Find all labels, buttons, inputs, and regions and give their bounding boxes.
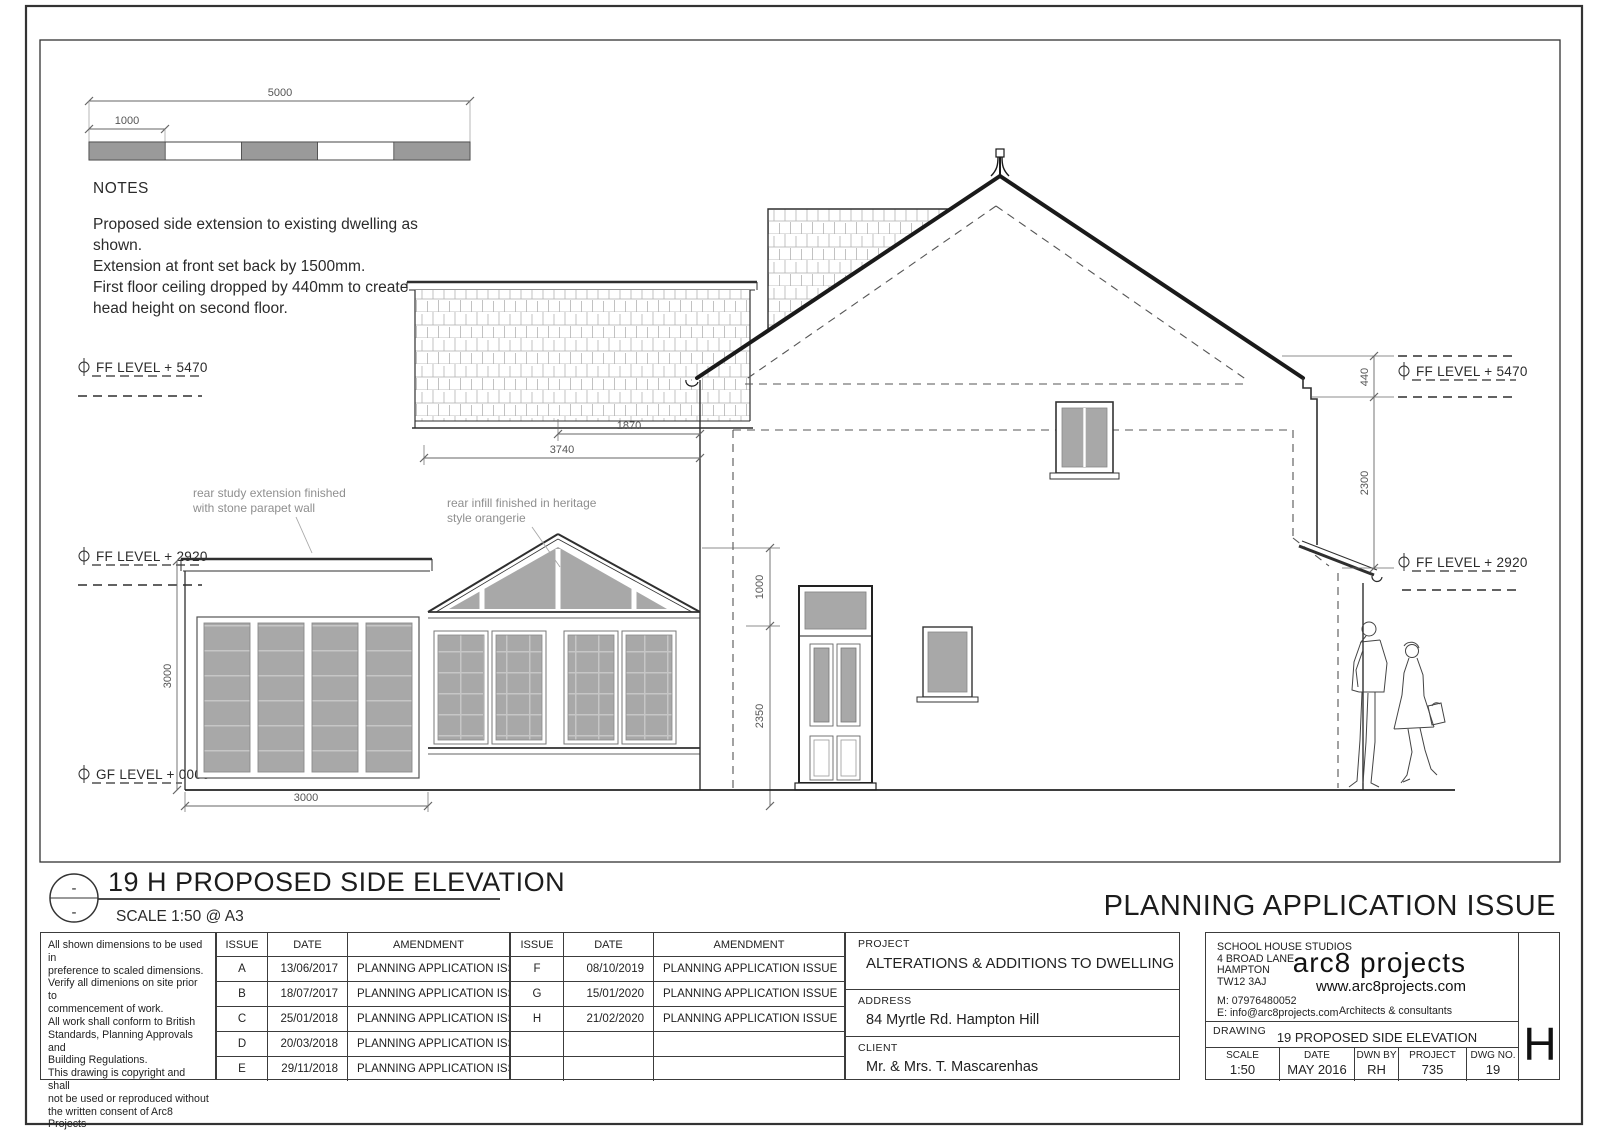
table-row: B 18/07/2017 PLANNING APPLICATION ISSUE: [217, 981, 509, 1006]
cell-amendment: PLANNING APPLICATION ISSUE: [347, 1057, 509, 1081]
drawn-by-value: RH: [1355, 1061, 1398, 1077]
dim-440: 440: [1359, 368, 1371, 386]
finial-icon: [991, 149, 1009, 176]
table-row: C 25/01/2018 PLANNING APPLICATION ISSUE: [217, 1006, 509, 1031]
cell-issue: [511, 1032, 563, 1056]
firm-logo-text: arc8 projects: [1293, 947, 1466, 979]
notes-line: head height on second floor.: [93, 300, 288, 317]
cell-date: [563, 1057, 653, 1081]
ff-level-2920-left: FF LEVEL + 2920: [96, 549, 208, 564]
dim-1870: 1870: [617, 420, 641, 432]
project-info-block: PROJECT ALTERATIONS & ADDITIONS TO DWELL…: [845, 932, 1180, 1080]
cell-date: 15/01/2020: [563, 982, 653, 1006]
scale-cell: SCALE 1:50: [1206, 1048, 1279, 1081]
notes-heading: NOTES: [93, 180, 149, 197]
parapet-annotation: with stone parapet wall: [192, 501, 315, 515]
notes-line: Proposed side extension to existing dwel…: [93, 216, 418, 233]
ff-level-2920-right: FF LEVEL + 2920: [1416, 555, 1528, 570]
dwg-no-value: 19: [1467, 1061, 1519, 1077]
cell-amendment: [653, 1032, 844, 1056]
general-notes-box: All shown dimensions to be used in prefe…: [40, 932, 216, 1080]
project-no-label: PROJECT: [1399, 1050, 1466, 1061]
notes-line: Extension at front set back by 1500mm.: [93, 258, 365, 275]
cell-issue: A: [217, 957, 267, 981]
table-row: [511, 1056, 844, 1081]
datum-icon: [79, 358, 89, 783]
dim-3740: 3740: [550, 444, 574, 456]
project-no-value: 735: [1399, 1061, 1466, 1077]
scale-bar: 5000 1000: [85, 87, 474, 160]
view-ref-top: -: [72, 880, 77, 897]
firm-tagline: Architects & consultants: [1339, 1005, 1452, 1017]
door-glazed-panel: [814, 648, 829, 722]
table-row: A 13/06/2017 PLANNING APPLICATION ISSUE: [217, 956, 509, 981]
drawing-sheet: 5000 1000 NOTES Proposed side extension …: [0, 0, 1600, 1130]
ground-floor-window: [917, 627, 978, 702]
drawing-title-row: DRAWING 19 PROPOSED SIDE ELEVATION: [1206, 1021, 1519, 1047]
revision-header-row: ISSUE DATE AMENDMENT: [217, 933, 509, 956]
cell-amendment: PLANNING APPLICATION ISSUE: [347, 1007, 509, 1031]
dim-3000-height: 3000: [162, 664, 174, 688]
gf-level-left: GF LEVEL + 0000: [96, 767, 210, 782]
cell-date: 13/06/2017: [267, 957, 347, 981]
project-row: PROJECT ALTERATIONS & ADDITIONS TO DWELL…: [846, 933, 1179, 989]
firm-info-area: SCHOOL HOUSE STUDIOS 4 BROAD LANE HAMPTO…: [1206, 933, 1519, 1021]
cell-amendment: PLANNING APPLICATION ISSUE: [653, 957, 844, 981]
drawing-info-row: SCALE 1:50 DATE MAY 2016 DWN BY RH PROJE…: [1206, 1047, 1519, 1081]
project-client: Mr. & Mrs. T. Mascarenhas: [858, 1054, 1179, 1075]
cell-issue: B: [217, 982, 267, 1006]
cell-amendment: PLANNING APPLICATION ISSUE: [347, 982, 509, 1006]
view-title: - - 19 H PROPOSED SIDE ELEVATION SCALE 1…: [50, 867, 1556, 925]
scale-value: 1:50: [1206, 1061, 1279, 1077]
firm-mobile: M: 07976480052: [1217, 995, 1297, 1007]
dim-1000: 1000: [754, 575, 766, 599]
table-row: D 20/03/2018 PLANNING APPLICATION ISSUE: [217, 1031, 509, 1056]
project-no-cell: PROJECT 735: [1398, 1048, 1466, 1081]
glazed-door-panel: [204, 623, 250, 772]
table-row: [511, 1031, 844, 1056]
cell-issue: C: [217, 1007, 267, 1031]
level-markers-right: FF LEVEL + 5470 FF LEVEL + 2920: [1398, 356, 1528, 590]
project-label: PROJECT: [858, 938, 1179, 950]
firm-title-block: SCHOOL HOUSE STUDIOS 4 BROAD LANE HAMPTO…: [1205, 932, 1560, 1080]
dim-3000-width: 3000: [294, 792, 318, 804]
drawn-by-label: DWN BY: [1355, 1050, 1398, 1061]
notes-block: NOTES Proposed side extension to existin…: [93, 180, 418, 317]
scalebar-first-label: 1000: [115, 115, 139, 127]
gutter-end-icon: [1372, 576, 1382, 582]
dim-2300: 2300: [1359, 471, 1371, 495]
revision-table-left: ISSUE DATE AMENDMENT A 13/06/2017 PLANNI…: [216, 932, 510, 1080]
revision-letter-box: H: [1519, 933, 1561, 1081]
window-sill: [1050, 473, 1119, 479]
cell-date: 20/03/2018: [267, 1032, 347, 1056]
project-address: 84 Myrtle Rd. Hampton Hill: [858, 1007, 1179, 1028]
cell-issue: E: [217, 1057, 267, 1081]
parapet-annotation: rear study extension finished: [193, 486, 346, 500]
cell-amendment: PLANNING APPLICATION ISSUE: [653, 982, 844, 1006]
table-row: E 29/11/2018 PLANNING APPLICATION ISSUE: [217, 1056, 509, 1081]
address-label: ADDRESS: [858, 995, 1179, 1007]
scale-label: SCALE: [1206, 1050, 1279, 1061]
ff-level-5470-left: FF LEVEL + 5470: [96, 360, 208, 375]
door-glazed-panel: [841, 648, 856, 722]
glazed-door-panel: [312, 623, 358, 772]
cell-date: 25/01/2018: [267, 1007, 347, 1031]
cell-date: [563, 1032, 653, 1056]
date-value: MAY 2016: [1280, 1061, 1354, 1077]
man-figure: [1349, 622, 1387, 787]
firm-email: E: info@arc8projects.com: [1217, 1007, 1338, 1019]
notes-line: shown.: [93, 237, 142, 254]
window-sill: [917, 697, 978, 702]
first-floor-window: [1050, 402, 1119, 479]
rear-study-extension: [181, 559, 432, 790]
datum-icon: [1399, 362, 1409, 571]
dim-2350: 2350: [754, 704, 766, 728]
table-row: G 15/01/2020 PLANNING APPLICATION ISSUE: [511, 981, 844, 1006]
cell-issue: D: [217, 1032, 267, 1056]
cell-date: 08/10/2019: [563, 957, 653, 981]
view-ref-bottom: -: [72, 904, 77, 921]
cell-amendment: PLANNING APPLICATION ISSUE: [347, 1032, 509, 1056]
table-row: F 08/10/2019 PLANNING APPLICATION ISSUE: [511, 956, 844, 981]
col-date: DATE: [563, 933, 653, 956]
woman-figure: [1394, 642, 1445, 783]
glazed-door-panel: [258, 623, 304, 772]
scalebar-total-label: 5000: [268, 87, 292, 99]
cell-issue: G: [511, 982, 563, 1006]
dwg-no-label: DWG NO.: [1467, 1050, 1519, 1061]
ff-level-5470-right: FF LEVEL + 5470: [1416, 364, 1528, 379]
cell-amendment: [653, 1057, 844, 1081]
door-threshold: [795, 783, 876, 790]
col-amendment: AMENDMENT: [653, 933, 844, 956]
date-label: DATE: [1280, 1050, 1354, 1061]
date-cell: DATE MAY 2016: [1279, 1048, 1354, 1081]
planning-issue-banner: PLANNING APPLICATION ISSUE: [1104, 890, 1556, 922]
client-label: CLIENT: [858, 1042, 1179, 1054]
cell-issue: H: [511, 1007, 563, 1031]
col-amendment: AMENDMENT: [347, 933, 509, 956]
cell-issue: [511, 1057, 563, 1081]
cell-amendment: PLANNING APPLICATION ISSUE: [347, 957, 509, 981]
revision-header-row: ISSUE DATE AMENDMENT: [511, 933, 844, 956]
revision-letter: H: [1519, 1017, 1561, 1071]
drawing-title: 19 PROPOSED SIDE ELEVATION: [1242, 1030, 1512, 1045]
cell-date: 18/07/2017: [267, 982, 347, 1006]
table-row: H 21/02/2020 PLANNING APPLICATION ISSUE: [511, 1006, 844, 1031]
tile-hung-band: [407, 282, 757, 428]
view-scale-text: SCALE 1:50 @ A3: [116, 908, 244, 925]
client-row: CLIENT Mr. & Mrs. T. Mascarenhas: [846, 1036, 1179, 1081]
orangerie-annotation: rear infill finished in heritage: [447, 496, 597, 510]
cell-date: 29/11/2018: [267, 1057, 347, 1081]
col-date: DATE: [267, 933, 347, 956]
entrance-door: [795, 586, 876, 790]
door-transom-glazing: [805, 592, 866, 629]
project-name: ALTERATIONS & ADDITIONS TO DWELLING: [858, 950, 1179, 972]
glazed-door-panel: [366, 623, 412, 772]
cell-amendment: PLANNING APPLICATION ISSUE: [653, 1007, 844, 1031]
view-title-text: 19 H PROPOSED SIDE ELEVATION: [108, 867, 565, 897]
dwg-no-cell: DWG NO. 19: [1466, 1048, 1519, 1081]
cell-issue: F: [511, 957, 563, 981]
cell-date: 21/02/2020: [563, 1007, 653, 1031]
address-row: ADDRESS 84 Myrtle Rd. Hampton Hill: [846, 989, 1179, 1036]
drawn-by-cell: DWN BY RH: [1354, 1048, 1398, 1081]
orangerie-annotation: style orangerie: [447, 511, 526, 525]
annotations: rear study extension finished with stone…: [192, 486, 597, 567]
notes-line: First floor ceiling dropped by 440mm to …: [93, 279, 408, 296]
firm-website: www.arc8projects.com: [1316, 978, 1466, 995]
col-issue: ISSUE: [217, 933, 267, 956]
col-issue: ISSUE: [511, 933, 563, 956]
orangerie: [428, 534, 700, 754]
revision-table-right: ISSUE DATE AMENDMENT F 08/10/2019 PLANNI…: [510, 932, 845, 1080]
